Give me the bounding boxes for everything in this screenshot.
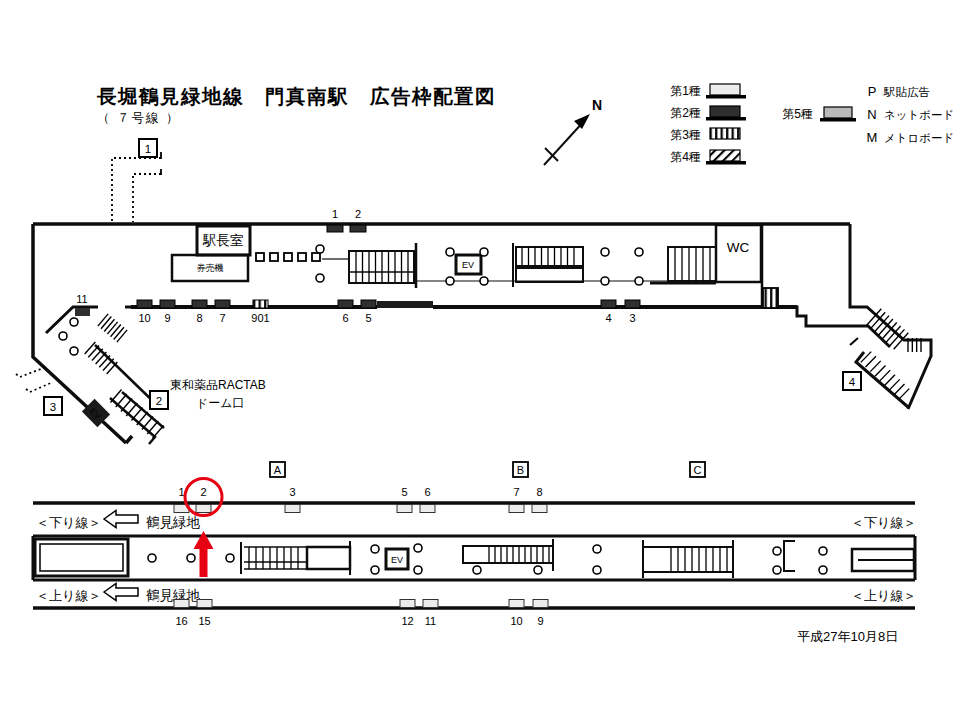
pillar [70,318,78,326]
legend-swatch-type4 [710,150,740,161]
down-line-label-left: ＜下り線＞ [36,515,101,530]
page-subtitle: （ ７号線 ） [97,111,180,125]
pillar [473,566,481,574]
ad-slot-number: 8 [196,312,202,324]
pillar [773,566,781,574]
ad-slot-number: 2 [355,208,361,220]
left-arrow-icon [104,511,138,528]
pillar [773,547,781,555]
date-label: 平成27年10月8日 [797,629,898,644]
exit-note-line2: ドーム口 [196,396,245,410]
ad-slot-concourse-8 [192,300,207,308]
ad-slot-platform-12 [400,600,415,608]
platform-elevator-label: EV [391,555,403,565]
diagram-canvas: 長堀鶴見緑地線 門真南駅 広告枠配置図 （ ７号線 ） N 第1種第2種第3種第… [0,0,960,720]
concourse-stair-1 [349,243,416,288]
ad-slot-number: 9 [537,615,543,627]
destination-label-down: 鶴見緑地 [146,515,201,530]
left-arrow-icon [104,584,138,601]
wc-label: WC [727,240,750,255]
exit-box-label: 1 [145,143,151,155]
ad-slot-platform-11 [423,600,438,608]
legend-code-label: ネットボード [884,109,954,121]
platform-stair-right [643,540,733,578]
north-label: N [592,97,602,113]
ad-slot-platform-6 [420,505,435,513]
platform-stair-left [241,541,350,575]
ad-slot-number: 4 [605,312,611,324]
pillar [226,554,234,562]
exit4-corridor-wall [762,307,890,347]
ad-slot-concourse-6 [338,300,353,308]
ad-slot-concourse-10 [137,300,152,308]
ad-placement-diagram-page: 長堀鶴見緑地線 門真南駅 広告枠配置図 （ ７号線 ） N 第1種第2種第3種第… [0,0,960,720]
legend-label: 第1種 [670,84,701,98]
pillar [593,566,601,574]
exit-box-label: 2 [156,395,162,407]
section-markers: ABC [270,462,705,477]
ad-slot-number: 6 [424,486,430,498]
ad-slot-number: 3 [289,486,295,498]
ad-slot-platform-3 [285,505,300,513]
ad-slot-concourse-4 [601,300,616,308]
ad-slot-number: 8 [536,486,542,498]
legend-swatch-type5 [824,107,852,118]
pillar [70,347,78,355]
ticket-machine-label: 券売機 [197,263,224,273]
platform-left-room-inner [40,544,123,571]
ad-slot-number: 5 [365,312,371,324]
platform-bracket [784,541,795,571]
ad-slot-platform-2 [196,505,211,513]
ad-slot-number: 11 [76,293,87,305]
hall-right-wall [850,224,931,409]
legend: 第1種第2種第3種第4種第5種P駅貼広告NネットボードMメトロボード [670,84,954,165]
pillar [414,544,422,552]
exit1-dotted-path [112,152,161,222]
legend-code: N [867,107,876,122]
ad-slot-concourse-9 [160,300,175,308]
legend-code-label: メトロボード [884,132,954,144]
pillar [59,332,67,340]
section-marker-label: C [694,464,702,476]
pillar [480,277,488,285]
ad-slot-concourse-5 [361,300,376,308]
exit-note-line1: 東和薬品RACTAB [170,378,266,392]
legend-swatch-type2 [710,106,740,117]
ad-slot-number: 15 [198,615,210,627]
pillar [414,566,422,574]
ad-slot-number: 10 [510,615,522,627]
pillar [371,566,379,574]
pillar [635,277,643,285]
ad-slot-number: 12 [401,615,413,627]
pillar [635,248,643,256]
hall-bottom-wall-thick-segment [377,301,433,308]
ad-slot-platform-7 [509,505,524,513]
ad-slot-number: 9 [164,312,170,324]
concourse-elevator-label: EV [462,260,474,270]
ad-slot-number: 901 [251,312,269,324]
down-line-label-right: ＜下り線＞ [851,515,916,530]
ad-slot-concourse-11 [75,308,90,316]
legend-label: 第5種 [782,107,813,121]
concourse-diagram: 駅長室 券売機 WC EV [16,139,931,444]
pillar [316,274,324,282]
exit-box-label: 3 [50,401,56,413]
legend-label: 第4種 [670,150,701,164]
pillar [601,277,609,285]
section-marker-label: A [274,464,282,476]
ad-slot-concourse-7 [215,300,230,308]
exit-box-label: 4 [849,376,856,388]
station-office-label: 駅長室 [202,233,244,248]
pillar [148,554,156,562]
up-line-label-left: ＜上り線＞ [36,588,101,603]
pillar [446,248,454,256]
fare-gates [256,253,320,261]
ad-slot-platform-5 [397,505,412,513]
platform-diagram: ABC EV [33,462,916,627]
ad-slot-number: 16 [175,615,187,627]
pillar [187,554,195,562]
ad-slot-platform-9 [533,600,548,608]
ad-slot-number: 1 [332,208,338,220]
section-marker-label: B [517,464,524,476]
pillar [446,277,454,285]
page-title: 長堀鶴見緑地線 門真南駅 広告枠配置図 [96,85,496,107]
ad-slot-number: 11 [425,615,436,627]
legend-label: 第2種 [670,106,701,120]
north-compass-icon: N [544,97,602,165]
ad-slot-platform-15 [197,600,212,608]
ad-slot-concourse-2 [350,225,366,232]
ad-slot-concourse-901 [253,300,268,308]
legend-code-label: 駅貼広告 [883,86,930,98]
pillar [534,566,542,574]
ad-slot-number: 6 [342,312,348,324]
striped-duct [763,288,778,308]
ad-slot-number: 5 [401,486,407,498]
destination-label-up: 鶴見緑地 [146,588,201,603]
ad-slot-platform-10 [509,600,524,608]
ad-slot-number: 7 [219,312,225,324]
up-line-label-right: ＜上り線＞ [851,588,916,603]
ad-slot-number: 2 [200,486,206,498]
legend-swatch-type3 [710,128,740,139]
ad-slot-concourse-3 [625,300,640,308]
legend-code: P [868,84,877,99]
ad-slot-platform-16 [174,600,189,608]
ad-slot-number: 3 [629,312,635,324]
highlight-arrow [194,531,214,577]
pillar [480,248,488,256]
ad-slot-concourse-1 [327,225,343,232]
pillar [371,545,379,553]
pillar [593,545,601,553]
pillar [819,566,827,574]
concourse-stair-3 [668,247,716,281]
ad-slot-platform-8 [532,505,547,513]
legend-code: M [867,130,878,145]
ad-slot-number: 10 [138,312,150,324]
pillar [316,245,324,253]
pillar [601,248,609,256]
legend-swatch-type1 [710,84,740,95]
legend-label: 第3種 [670,128,701,142]
pillar [819,547,827,555]
ad-slot-number: 7 [513,486,519,498]
